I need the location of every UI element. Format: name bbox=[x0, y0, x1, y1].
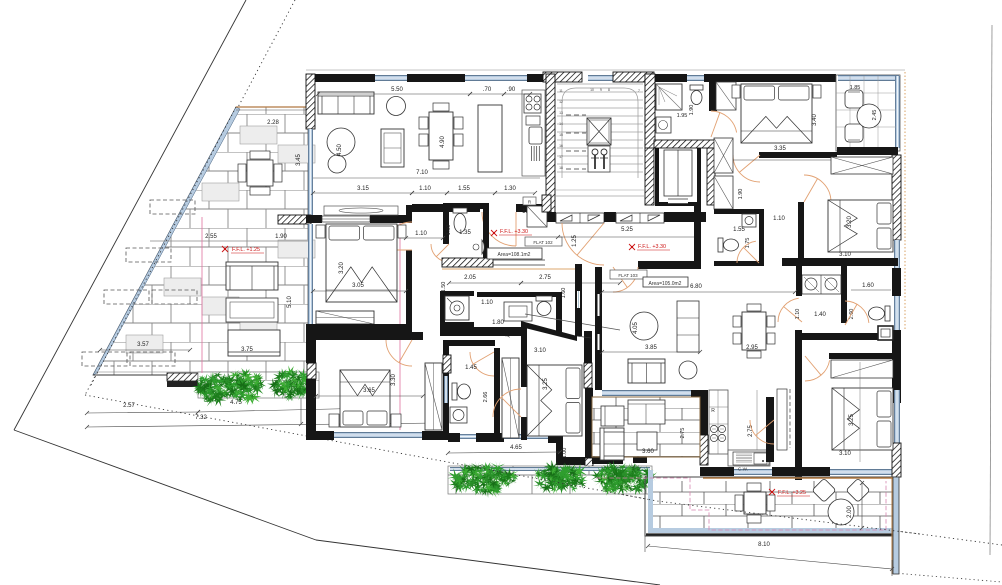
svg-text:6.80: 6.80 bbox=[690, 284, 702, 290]
svg-text:3.10: 3.10 bbox=[534, 348, 546, 354]
svg-text:2.55: 2.55 bbox=[205, 234, 217, 240]
svg-text:13: 13 bbox=[559, 111, 563, 115]
svg-text:1.30: 1.30 bbox=[504, 186, 516, 192]
svg-text:1.85: 1.85 bbox=[850, 85, 861, 91]
svg-text:3.85: 3.85 bbox=[645, 345, 657, 351]
svg-text:3.15: 3.15 bbox=[357, 186, 369, 192]
svg-text:8: 8 bbox=[608, 88, 610, 92]
svg-text:1.10: 1.10 bbox=[481, 300, 493, 306]
svg-text:1.00: 1.00 bbox=[562, 448, 568, 459]
svg-text:3.30: 3.30 bbox=[391, 374, 397, 386]
svg-text:2.28: 2.28 bbox=[267, 120, 279, 126]
svg-text:1.50: 1.50 bbox=[441, 282, 447, 293]
svg-text:3.25: 3.25 bbox=[849, 414, 855, 426]
svg-text:4.90: 4.90 bbox=[440, 136, 446, 148]
svg-text:F.F.L. +3.30: F.F.L. +3.30 bbox=[500, 229, 528, 235]
svg-text:12: 12 bbox=[559, 100, 563, 104]
svg-text:11: 11 bbox=[559, 89, 563, 93]
svg-text:5.25: 5.25 bbox=[621, 227, 633, 233]
svg-text:1.90: 1.90 bbox=[738, 189, 744, 200]
svg-text:2.45: 2.45 bbox=[872, 110, 878, 121]
svg-text:1.80: 1.80 bbox=[492, 320, 504, 326]
svg-text:1.60: 1.60 bbox=[862, 283, 874, 289]
svg-text:1.80: 1.80 bbox=[446, 225, 452, 236]
svg-text:1.25: 1.25 bbox=[572, 235, 578, 247]
svg-text:1.55: 1.55 bbox=[458, 186, 470, 192]
svg-text:2.60: 2.60 bbox=[849, 309, 855, 320]
svg-text:1.35: 1.35 bbox=[459, 230, 471, 236]
svg-text:17: 17 bbox=[559, 155, 563, 159]
svg-text:1.10: 1.10 bbox=[419, 186, 431, 192]
svg-text:1.55: 1.55 bbox=[733, 227, 745, 233]
svg-text:2.75: 2.75 bbox=[680, 428, 686, 439]
svg-text:C.W.: C.W. bbox=[738, 467, 748, 472]
svg-text:3.45: 3.45 bbox=[296, 154, 302, 166]
svg-text:1.90: 1.90 bbox=[275, 234, 287, 240]
svg-text:2.75: 2.75 bbox=[539, 275, 551, 281]
svg-text:3.57: 3.57 bbox=[137, 342, 149, 348]
svg-text:3.20: 3.20 bbox=[339, 262, 345, 274]
svg-text:18: 18 bbox=[559, 166, 563, 170]
svg-text:2.05: 2.05 bbox=[464, 275, 476, 281]
svg-text:4.05: 4.05 bbox=[633, 322, 639, 334]
svg-text:10: 10 bbox=[590, 88, 594, 92]
svg-text:1.45: 1.45 bbox=[465, 365, 477, 371]
svg-text:3.60: 3.60 bbox=[642, 449, 654, 455]
svg-text:9: 9 bbox=[600, 88, 602, 92]
svg-text:.70: .70 bbox=[483, 87, 492, 93]
svg-text:1.10: 1.10 bbox=[773, 216, 785, 222]
svg-text:3.10: 3.10 bbox=[839, 252, 851, 258]
svg-text:3.65: 3.65 bbox=[363, 388, 375, 394]
svg-text:F.F.L. +3.25: F.F.L. +3.25 bbox=[778, 490, 806, 496]
svg-text:4.65: 4.65 bbox=[510, 445, 522, 451]
svg-text:3.10: 3.10 bbox=[839, 451, 851, 457]
svg-text:F.F.L. +3.30: F.F.L. +3.30 bbox=[638, 244, 666, 250]
svg-text:14: 14 bbox=[559, 122, 563, 126]
svg-text:5.10: 5.10 bbox=[287, 296, 293, 308]
svg-text:7.32: 7.32 bbox=[195, 415, 207, 421]
svg-text:1.95: 1.95 bbox=[677, 113, 688, 119]
svg-text:2.95: 2.95 bbox=[746, 345, 758, 351]
svg-text:7: 7 bbox=[638, 89, 640, 93]
svg-text:3.75: 3.75 bbox=[241, 347, 253, 353]
svg-text:2.57: 2.57 bbox=[123, 403, 135, 409]
svg-text:R: R bbox=[711, 408, 715, 414]
svg-text:4.50: 4.50 bbox=[337, 144, 343, 156]
svg-text:3.25: 3.25 bbox=[543, 378, 549, 390]
svg-text:1.40: 1.40 bbox=[814, 312, 826, 318]
svg-text:1.10: 1.10 bbox=[415, 231, 427, 237]
svg-text:5.50: 5.50 bbox=[391, 87, 403, 93]
svg-text:1.10: 1.10 bbox=[795, 309, 801, 320]
svg-text:.90: .90 bbox=[507, 87, 516, 93]
svg-text:1.90: 1.90 bbox=[689, 105, 695, 116]
svg-text:3.35: 3.35 bbox=[774, 146, 786, 152]
svg-text:3.20: 3.20 bbox=[847, 216, 853, 228]
svg-text:15: 15 bbox=[559, 133, 563, 137]
svg-text:Area=105.0m2: Area=105.0m2 bbox=[649, 281, 682, 287]
svg-text:FLAT 103: FLAT 103 bbox=[618, 273, 638, 278]
svg-text:2.66: 2.66 bbox=[483, 392, 489, 403]
svg-text:3.40: 3.40 bbox=[812, 114, 818, 126]
svg-text:3.05: 3.05 bbox=[352, 283, 364, 289]
svg-text:16: 16 bbox=[559, 144, 563, 148]
svg-text:7.10: 7.10 bbox=[416, 170, 428, 176]
svg-text:Area=108.1m2: Area=108.1m2 bbox=[498, 252, 531, 258]
svg-text:2.00: 2.00 bbox=[847, 506, 853, 518]
svg-text:FLAT 102: FLAT 102 bbox=[533, 240, 553, 245]
svg-text:F.F.L. +1.25: F.F.L. +1.25 bbox=[232, 247, 260, 253]
svg-text:8.10: 8.10 bbox=[758, 542, 770, 548]
